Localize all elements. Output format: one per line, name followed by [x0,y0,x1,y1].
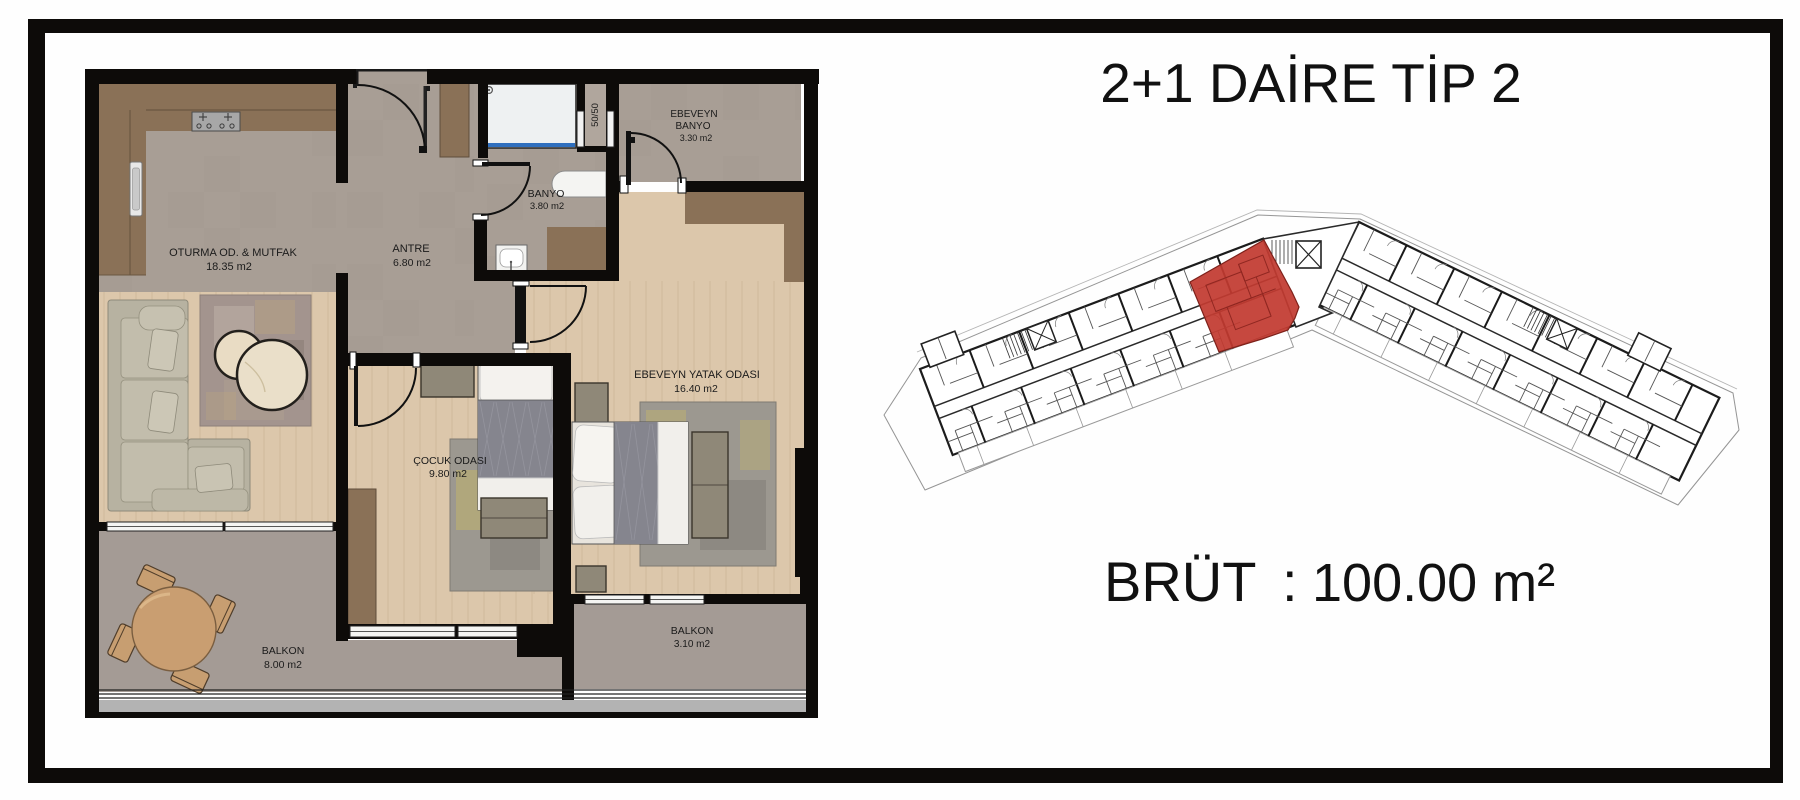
svg-text:6.80 m2: 6.80 m2 [393,257,431,269]
svg-text:ANTRE: ANTRE [392,243,429,255]
svg-text:2+1 DAİRE TİP 2: 2+1 DAİRE TİP 2 [1100,52,1521,114]
svg-text:100.00 m²: 100.00 m² [1312,553,1555,613]
svg-text:OTURMA OD. & MUTFAK: OTURMA OD. & MUTFAK [169,247,297,259]
svg-text:3.30 m2: 3.30 m2 [680,133,713,143]
svg-text:8.00 m2: 8.00 m2 [264,659,302,671]
svg-text:3.80 m2: 3.80 m2 [530,201,564,212]
svg-text:EBEVEYN YATAK ODASI: EBEVEYN YATAK ODASI [634,369,760,381]
svg-text:18.35 m2: 18.35 m2 [206,261,252,273]
svg-text:BRÜT: BRÜT [1104,550,1256,613]
svg-text:16.40 m2: 16.40 m2 [674,383,718,395]
svg-text:50/50: 50/50 [590,103,601,127]
svg-text:BALKON: BALKON [671,625,714,637]
svg-text:ÇOCUK ODASI: ÇOCUK ODASI [413,455,487,467]
svg-text:BANYO: BANYO [675,121,710,132]
svg-text:EBEVEYN: EBEVEYN [670,109,717,120]
svg-text:3.10 m2: 3.10 m2 [674,639,711,650]
svg-text:BANYO: BANYO [528,188,565,200]
svg-text::: : [1282,550,1298,613]
svg-text:9.80 m2: 9.80 m2 [429,468,467,480]
svg-text:BALKON: BALKON [262,645,305,657]
